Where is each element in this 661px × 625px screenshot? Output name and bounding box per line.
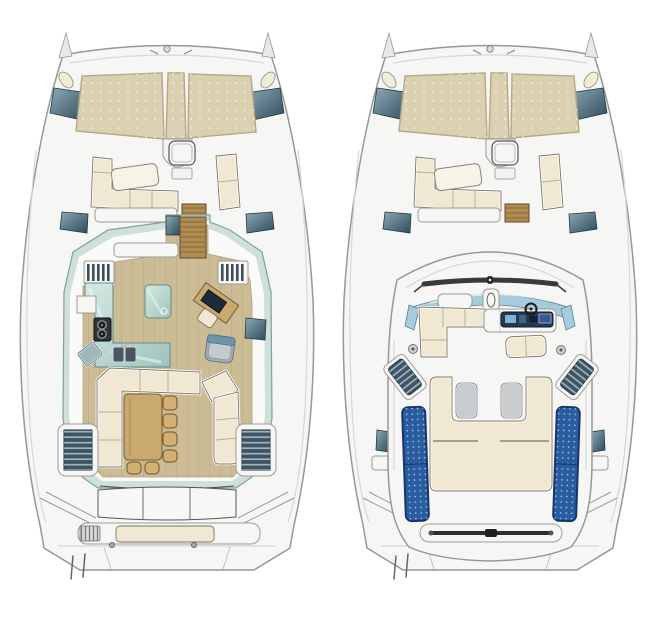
aft-cockpit bbox=[78, 487, 260, 548]
island-unit bbox=[145, 285, 171, 318]
solar-panel-port bbox=[402, 407, 429, 522]
saloon bbox=[58, 215, 276, 494]
davit-hook-starboard bbox=[192, 543, 197, 548]
boat-flybridge-plan: Upper deck plan — coachroof flybridge wi… bbox=[343, 33, 636, 579]
port-louvered-locker bbox=[84, 261, 114, 284]
canvas: Catamaran deck plans — top view, two lev… bbox=[0, 0, 661, 625]
starboard-deck-hatch bbox=[591, 430, 605, 452]
helm-bench bbox=[505, 335, 546, 358]
boat-main-deck-plan: Main deck plan — trampolines, forward co… bbox=[20, 33, 313, 579]
starboard-side-window bbox=[245, 318, 266, 340]
chartplotter-screen bbox=[505, 315, 516, 323]
transom-cushion bbox=[116, 526, 214, 542]
nav-armchair bbox=[204, 334, 235, 364]
aft-bench bbox=[98, 487, 236, 520]
headrest-pad-port bbox=[456, 383, 477, 418]
saloon-entry-slats bbox=[181, 222, 205, 252]
stove bbox=[94, 318, 111, 341]
dining-area bbox=[97, 368, 240, 474]
flybridge-side-table bbox=[438, 294, 472, 308]
deck-plan-figure: Catamaran deck plans — top view, two lev… bbox=[0, 0, 661, 625]
solar-panel-starboard bbox=[553, 407, 580, 522]
headrest-pad-starboard bbox=[501, 383, 522, 418]
galley-appliance bbox=[77, 296, 96, 313]
starboard-hull-steps bbox=[236, 424, 276, 476]
forward-shelf bbox=[114, 243, 178, 257]
instrument-screen bbox=[539, 314, 551, 323]
port-hull-steps bbox=[58, 424, 98, 476]
aft-grab-rail bbox=[420, 524, 562, 542]
starboard-louvered-locker bbox=[218, 261, 248, 284]
davit-hook-port bbox=[110, 543, 115, 548]
saloon-door-dark-panel bbox=[166, 216, 180, 235]
